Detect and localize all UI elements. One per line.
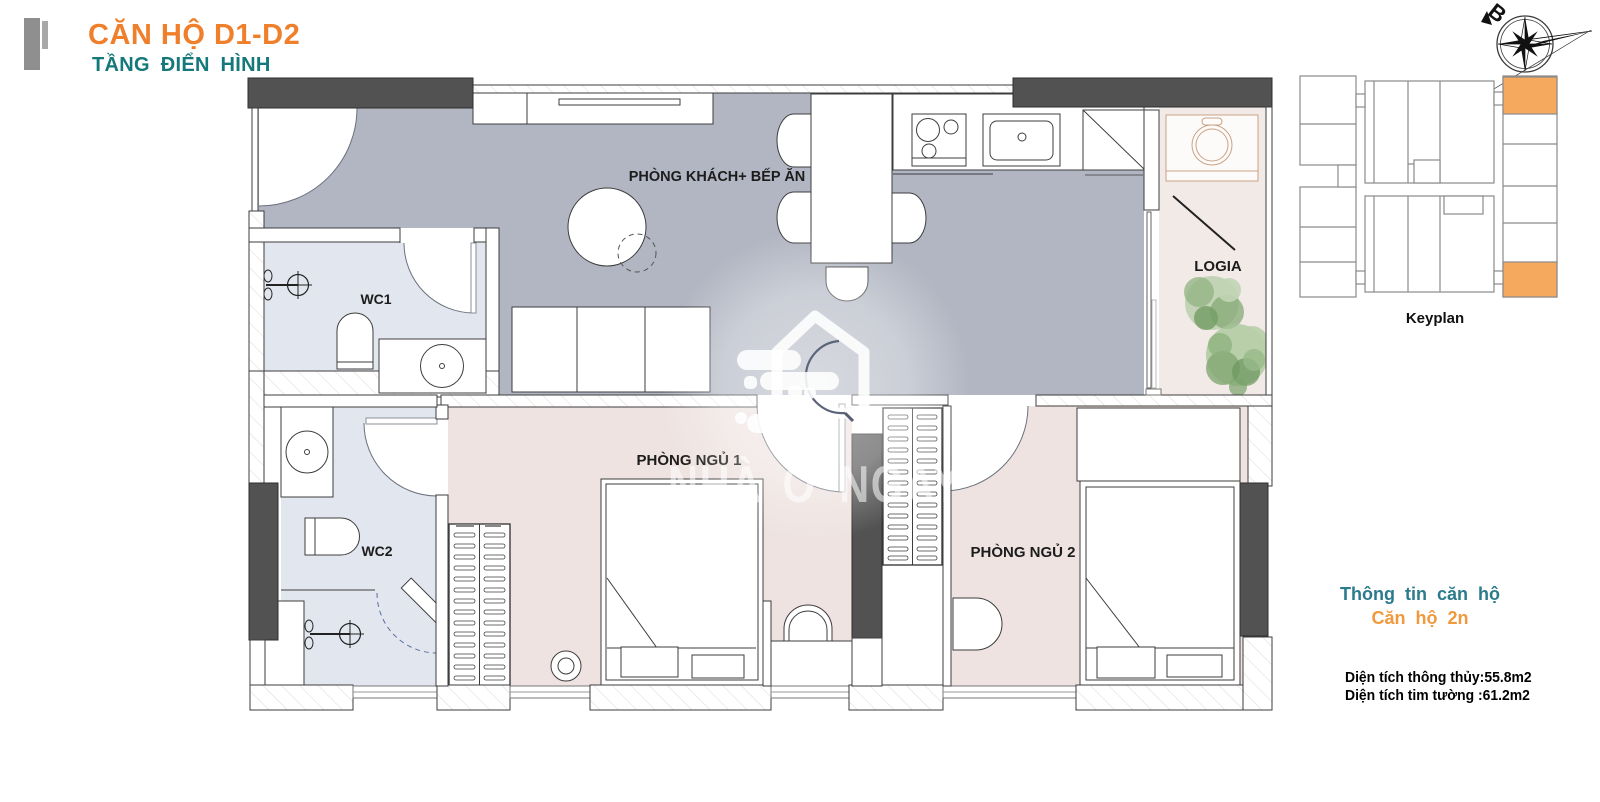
svg-text:Thông tin căn hộ: Thông tin căn hộ xyxy=(1340,584,1500,604)
svg-text:NHÀ Ở NGAY: NHÀ Ở NGAY xyxy=(668,455,962,514)
svg-text:CĂN HỘ D1-D2: CĂN HỘ D1-D2 xyxy=(88,17,300,51)
svg-text:PHÒNG NGỦ 2: PHÒNG NGỦ 2 xyxy=(970,543,1075,561)
svg-text:Diện tích thông thủy:55.8m2: Diện tích thông thủy:55.8m2 xyxy=(1345,670,1532,687)
svg-text:PHÒNG KHÁCH+ BẾP ĂN: PHÒNG KHÁCH+ BẾP ĂN xyxy=(629,167,806,185)
svg-text:LOGIA: LOGIA xyxy=(1194,258,1242,275)
svg-text:Căn hộ 2n: Căn hộ 2n xyxy=(1371,608,1468,628)
svg-text:Diện tích tim tường :61.2m2: Diện tích tim tường :61.2m2 xyxy=(1345,688,1530,705)
svg-text:WC2: WC2 xyxy=(361,543,392,559)
svg-text:Keyplan: Keyplan xyxy=(1406,310,1464,327)
svg-text:WC1: WC1 xyxy=(360,291,391,307)
svg-text:TẦNG ĐIỂN HÌNH: TẦNG ĐIỂN HÌNH xyxy=(92,53,271,76)
